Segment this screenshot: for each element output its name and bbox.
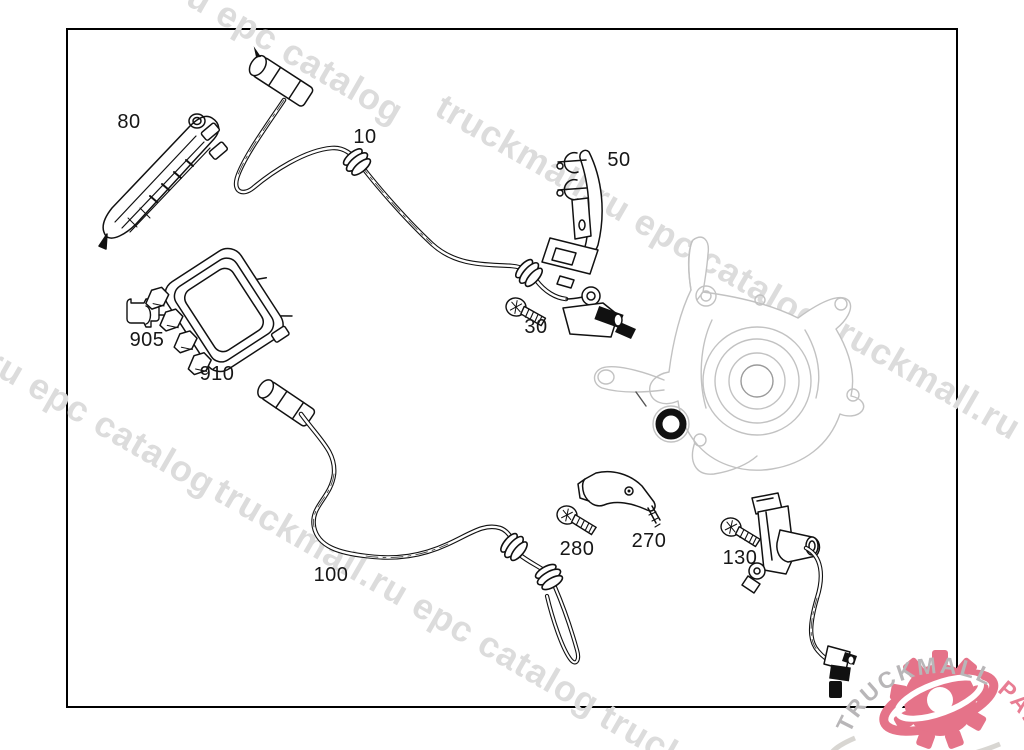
callout-905: 905 xyxy=(130,330,165,350)
callout-280: 280 xyxy=(560,539,595,559)
part-10-cable-drawing xyxy=(236,46,566,299)
part-80-drawing xyxy=(99,114,228,249)
callout-80: 80 xyxy=(117,112,140,132)
part-280-bolt-drawing xyxy=(554,504,599,535)
callout-270: 270 xyxy=(632,531,667,551)
callout-10: 10 xyxy=(353,127,376,147)
part-270-bracket-drawing xyxy=(578,472,660,527)
steering-knuckle-drawing xyxy=(595,237,864,474)
callout-30: 30 xyxy=(524,317,547,337)
callout-50: 50 xyxy=(607,150,630,170)
callout-910: 910 xyxy=(200,364,235,384)
callout-100: 100 xyxy=(314,565,349,585)
parts-catalog-page: truckmall.ru epc catalog truckmall.ru ep… xyxy=(0,0,1024,750)
callout-130: 130 xyxy=(723,548,758,568)
truckmall-parts-logo: TRUCKMALL PARTS xyxy=(800,592,1024,750)
part-100-cable-drawing xyxy=(255,377,578,662)
part-50-bracket-drawing xyxy=(542,150,602,288)
logo-swoosh-gray xyxy=(830,738,1000,750)
